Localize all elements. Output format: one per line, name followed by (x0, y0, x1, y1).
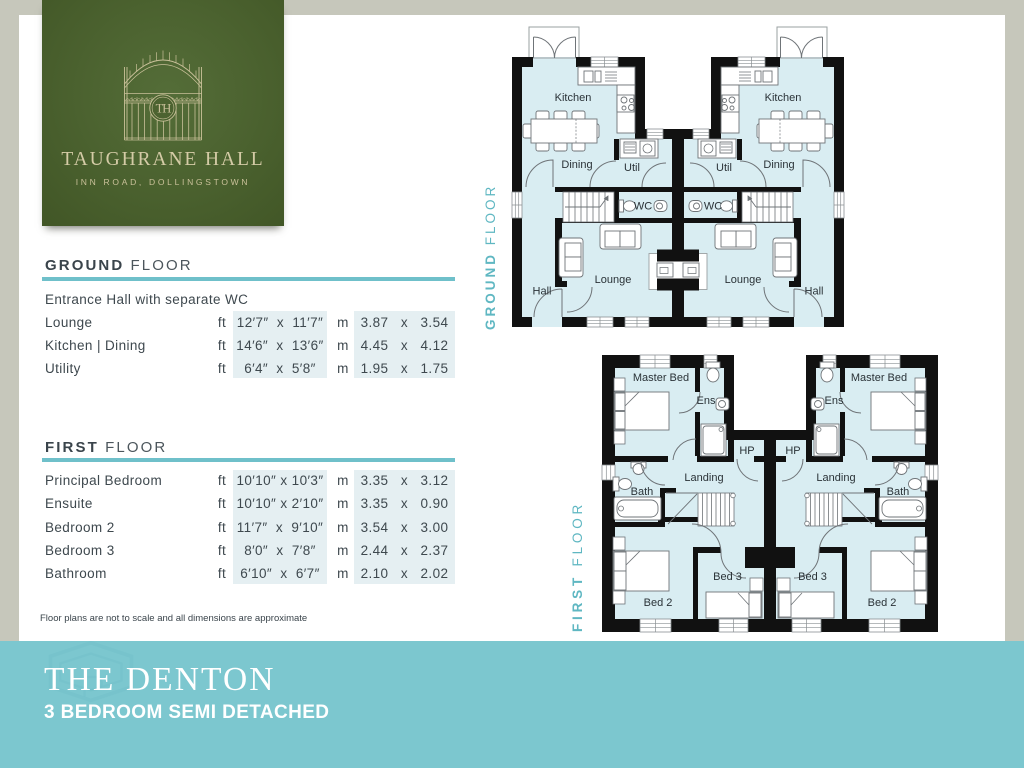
svg-text:TAUGHRANE HALL: TAUGHRANE HALL (61, 149, 264, 170)
svg-text:Master Bed: Master Bed (633, 372, 689, 384)
svg-text:Master Bed: Master Bed (851, 372, 907, 384)
svg-text:WC: WC (634, 201, 652, 213)
svg-text:INN ROAD, DOLLINGSTOWN: INN ROAD, DOLLINGSTOWN (76, 177, 250, 187)
svg-text:Ens: Ens (697, 395, 716, 407)
svg-text:Landing: Landing (816, 472, 855, 484)
svg-text:Bed 2: Bed 2 (644, 597, 673, 609)
svg-text:Dining: Dining (561, 159, 592, 171)
svg-text:GROUND FLOOR: GROUND FLOOR (483, 184, 498, 330)
svg-text:TH: TH (156, 102, 172, 116)
svg-text:Kitchen: Kitchen (765, 92, 802, 104)
svg-text:HP: HP (739, 445, 754, 457)
svg-text:Lounge: Lounge (725, 274, 762, 286)
svg-text:Bed 3: Bed 3 (713, 571, 742, 583)
svg-text:Kitchen: Kitchen (555, 92, 592, 104)
svg-text:Lounge: Lounge (595, 274, 632, 286)
svg-text:WC: WC (704, 201, 722, 213)
svg-text:Util: Util (624, 162, 640, 174)
svg-text:Bed 2: Bed 2 (868, 597, 897, 609)
svg-text:Bed 3: Bed 3 (798, 571, 827, 583)
svg-text:Util: Util (716, 162, 732, 174)
svg-text:Bath: Bath (631, 486, 654, 498)
svg-text:Bath: Bath (887, 486, 910, 498)
svg-text:HP: HP (785, 445, 800, 457)
svg-text:Ens: Ens (825, 395, 844, 407)
svg-text:Hall: Hall (533, 286, 552, 298)
svg-text:Hall: Hall (805, 286, 824, 298)
svg-text:Landing: Landing (684, 472, 723, 484)
svg-text:FIRST FLOOR: FIRST FLOOR (570, 501, 585, 632)
svg-text:Dining: Dining (763, 159, 794, 171)
